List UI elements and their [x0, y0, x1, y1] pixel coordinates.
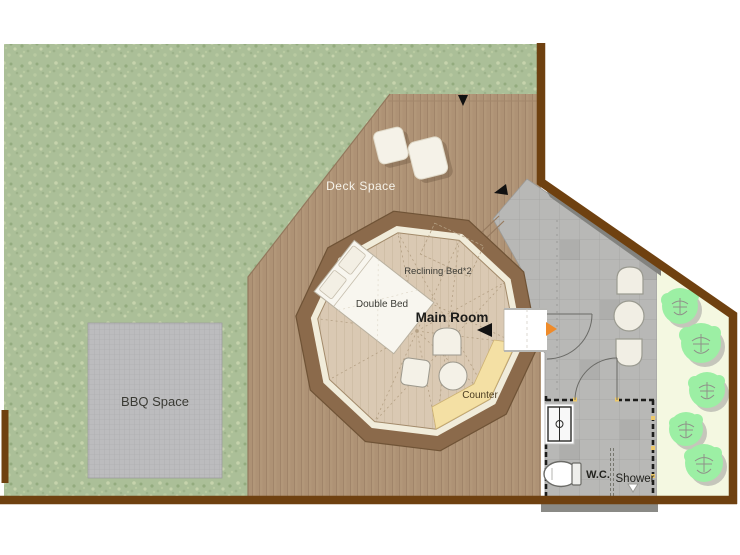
wc-label: W.C.: [586, 469, 610, 481]
deck-space-label: Deck Space: [326, 179, 396, 193]
counter-label: Counter: [462, 390, 498, 401]
bbq-space-label: BBQ Space: [121, 394, 189, 409]
site-border-left-segment: [2, 410, 9, 483]
bottom-border-shadow: [541, 504, 658, 512]
toilet: [544, 462, 581, 487]
floor-plan-canvas: Deck Space BBQ Space Main Room Double Be…: [0, 0, 740, 555]
main-room-label: Main Room: [416, 310, 489, 325]
room-round-table: [439, 362, 467, 390]
room-chair-arch: [433, 328, 461, 355]
patio-chair: [617, 267, 643, 294]
patio-chair: [616, 339, 642, 366]
reclining-bed-label: Reclining Bed*2: [404, 266, 472, 277]
room-chair-square: [400, 357, 430, 387]
floor-plan-svg: Deck Space BBQ Space Main Room Double Be…: [0, 0, 740, 555]
patio-round-table: [614, 301, 644, 331]
double-bed-label: Double Bed: [356, 299, 408, 310]
sink-unit: [545, 404, 574, 444]
shower-label: Shower: [616, 473, 655, 485]
